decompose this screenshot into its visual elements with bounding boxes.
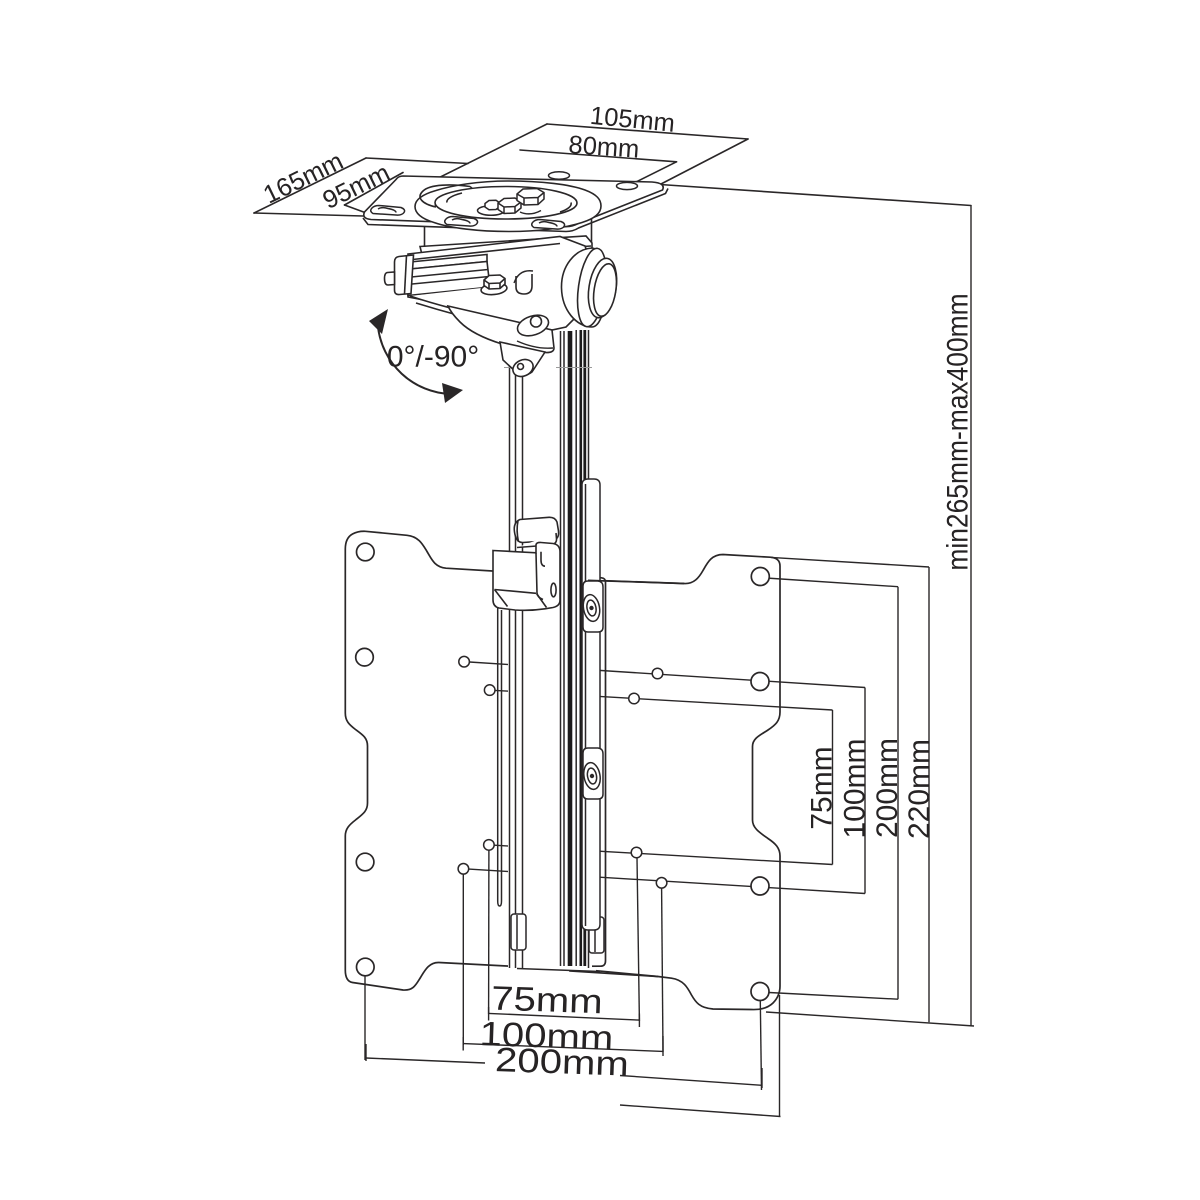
svg-text:75mm: 75mm xyxy=(806,746,839,829)
svg-text:80mm: 80mm xyxy=(568,131,641,164)
svg-text:0°/-90°: 0°/-90° xyxy=(387,341,479,374)
svg-text:220mm: 220mm xyxy=(903,739,936,839)
svg-text:200mm: 200mm xyxy=(871,738,904,838)
svg-text:200mm: 200mm xyxy=(495,1040,630,1083)
svg-text:min265mm-max400mm: min265mm-max400mm xyxy=(940,293,974,570)
svg-text:100mm: 100mm xyxy=(839,738,872,838)
